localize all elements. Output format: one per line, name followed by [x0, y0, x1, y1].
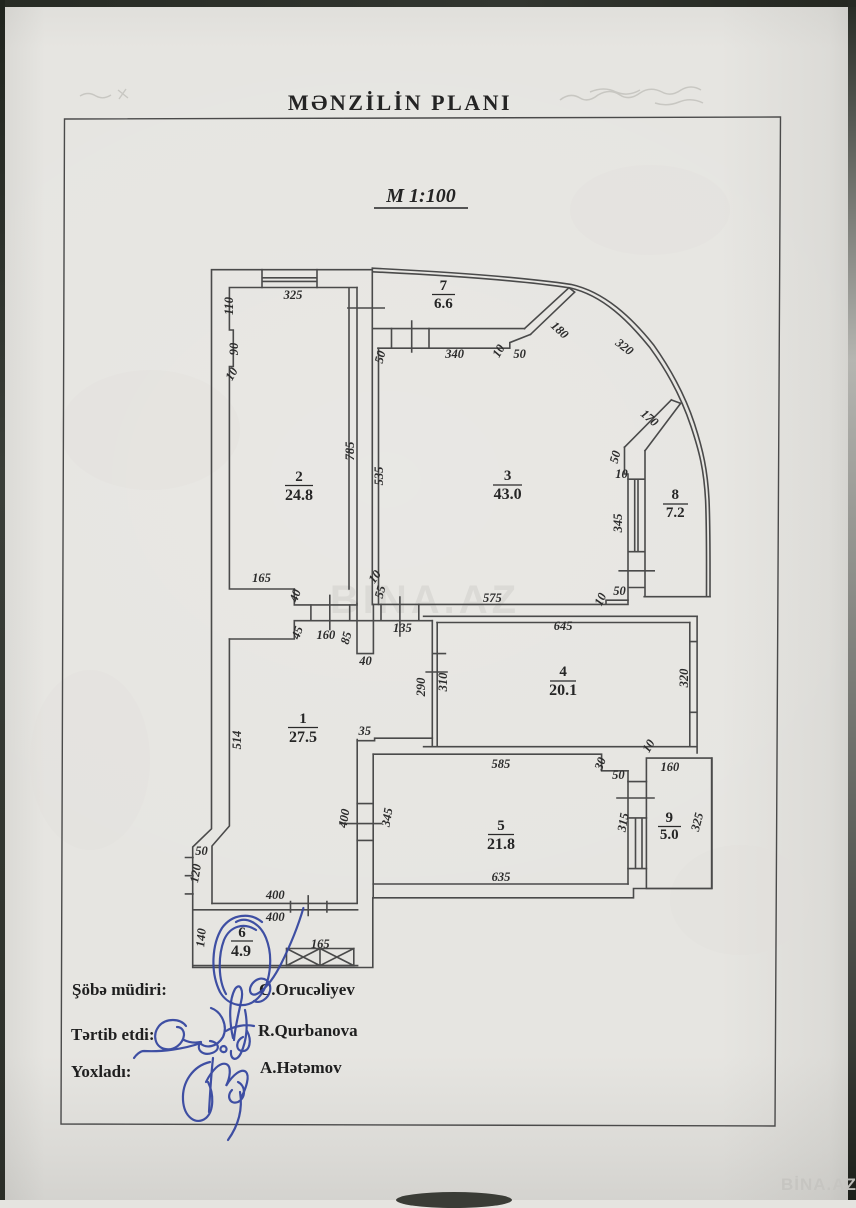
svg-text:400: 400: [265, 910, 286, 924]
svg-text:C.Orucəliyev: C.Orucəliyev: [259, 980, 355, 999]
svg-text:535: 535: [372, 467, 386, 486]
svg-text:21.8: 21.8: [487, 836, 515, 853]
svg-text:5: 5: [497, 818, 505, 834]
svg-text:325: 325: [688, 811, 707, 834]
svg-text:345: 345: [378, 807, 395, 829]
svg-text:10: 10: [222, 364, 241, 382]
svg-text:Şöbə müdiri:: Şöbə müdiri:: [72, 980, 167, 999]
svg-text:165: 165: [311, 937, 330, 951]
svg-text:6.6: 6.6: [434, 296, 453, 312]
svg-text:10: 10: [591, 590, 609, 608]
svg-text:R.Qurbanova: R.Qurbanova: [258, 1021, 358, 1040]
svg-text:BİNA.AZ: BİNA.AZ: [781, 1175, 856, 1194]
svg-text:50: 50: [195, 844, 208, 858]
svg-text:7.2: 7.2: [666, 505, 685, 521]
svg-text:400: 400: [265, 888, 286, 902]
svg-text:M 1:100: M 1:100: [385, 185, 455, 207]
svg-text:2: 2: [295, 469, 303, 485]
svg-text:20.1: 20.1: [549, 682, 577, 699]
svg-text:9: 9: [665, 810, 673, 826]
svg-text:575: 575: [483, 591, 502, 605]
svg-text:40: 40: [358, 654, 372, 668]
svg-text:8: 8: [671, 487, 679, 503]
svg-text:27.5: 27.5: [289, 729, 317, 746]
svg-text:340: 340: [444, 347, 465, 361]
svg-text:140: 140: [193, 927, 209, 948]
svg-text:MƏNZİLİN PLANI: MƏNZİLİN PLANI: [288, 90, 512, 115]
svg-text:170: 170: [638, 407, 662, 430]
svg-text:645: 645: [554, 619, 573, 633]
svg-text:50: 50: [612, 768, 625, 782]
svg-text:10: 10: [639, 736, 658, 754]
svg-text:310: 310: [436, 672, 450, 693]
svg-text:635: 635: [492, 870, 511, 884]
svg-text:90: 90: [227, 342, 241, 355]
svg-text:50: 50: [613, 584, 626, 598]
svg-text:135: 135: [393, 621, 412, 635]
svg-text:290: 290: [414, 677, 428, 698]
svg-text:160: 160: [661, 760, 681, 774]
svg-text:1: 1: [299, 711, 307, 727]
svg-text:325: 325: [283, 288, 303, 302]
svg-text:585: 585: [492, 757, 511, 771]
svg-text:785: 785: [343, 442, 357, 461]
svg-text:5.0: 5.0: [660, 827, 679, 843]
svg-text:50: 50: [513, 347, 526, 361]
svg-text:400: 400: [335, 807, 352, 830]
svg-text:4.9: 4.9: [231, 943, 251, 960]
svg-text:Tərtib etdi:: Tərtib etdi:: [71, 1025, 155, 1044]
svg-text:320: 320: [677, 668, 691, 689]
svg-text:3: 3: [504, 468, 512, 484]
svg-text:165: 165: [252, 571, 271, 585]
svg-text:160: 160: [317, 628, 337, 642]
svg-text:24.8: 24.8: [285, 487, 313, 504]
svg-text:35: 35: [358, 724, 372, 738]
svg-text:50: 50: [607, 448, 624, 464]
svg-text:Yoxladı:: Yoxladı:: [71, 1062, 131, 1081]
svg-text:315: 315: [614, 812, 631, 834]
svg-text:514: 514: [230, 731, 244, 750]
svg-text:7: 7: [440, 278, 448, 294]
svg-text:120: 120: [187, 862, 204, 884]
svg-text:4: 4: [559, 664, 567, 680]
svg-text:43.0: 43.0: [494, 486, 522, 503]
svg-text:10: 10: [615, 467, 628, 481]
svg-text:110: 110: [222, 296, 236, 315]
svg-text:345: 345: [611, 514, 625, 534]
svg-text:320: 320: [612, 335, 637, 359]
svg-text:A.Hətəmov: A.Hətəmov: [260, 1058, 342, 1077]
